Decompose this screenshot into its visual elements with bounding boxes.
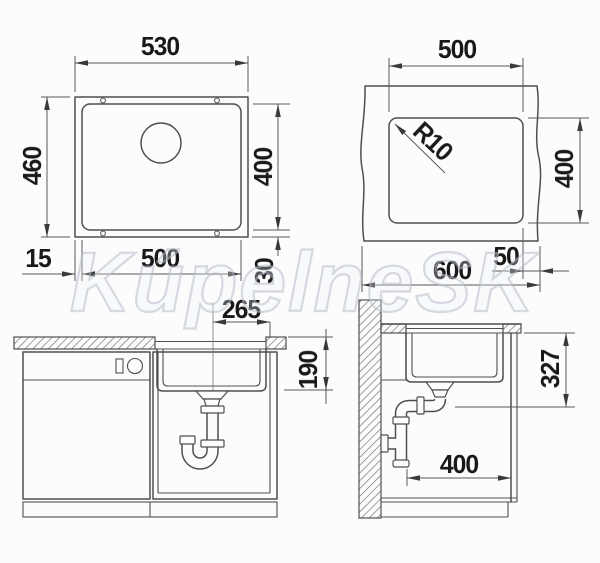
dim-bowl-width: 500 [141,245,179,271]
worktop-section [266,337,286,349]
dim-bowl-inner-depth: 190 [295,351,321,389]
dim-cabinet-clearance: 400 [440,451,478,477]
bowl-section [406,333,503,382]
worktop-panel [361,86,541,241]
fixing-hole [215,98,220,103]
dim-bowl-depth: 400 [250,148,276,186]
drain-hole [141,123,181,163]
dim-drain-offset: 265 [222,296,260,322]
sink-outer-edge [75,97,248,237]
worktop-section [14,337,155,349]
left-cabinet [23,352,150,499]
dim-edge-offset: 50 [493,243,519,269]
side-section-view [359,300,575,518]
drain-flange [426,382,454,390]
technical-drawing-page: 530 460 400 500 15 30 500 R10 400 600 50… [0,0,600,563]
dim-rim-bottom: 30 [251,258,277,284]
dim-rim-side: 15 [25,245,51,271]
wall-section [359,300,381,518]
appliance-knob [128,359,143,374]
dim-outer-depth: 460 [19,147,45,185]
front-elevation-view [14,303,333,517]
worktop-section [381,324,406,333]
bowl-section [157,349,266,391]
drawing-canvas [0,0,600,563]
dim-cutout-height: 400 [551,150,577,188]
worktop-section [503,324,521,333]
fixing-hole [101,98,106,103]
fixing-hole [101,231,106,236]
drain-flange [196,391,228,399]
appliance-control [116,359,123,373]
fixing-hole [215,231,220,236]
dim-outer-width: 530 [141,33,179,59]
dim-install-depth: 327 [537,350,563,388]
dim-cutout-width: 500 [438,36,476,62]
dim-panel-width: 600 [433,257,471,283]
